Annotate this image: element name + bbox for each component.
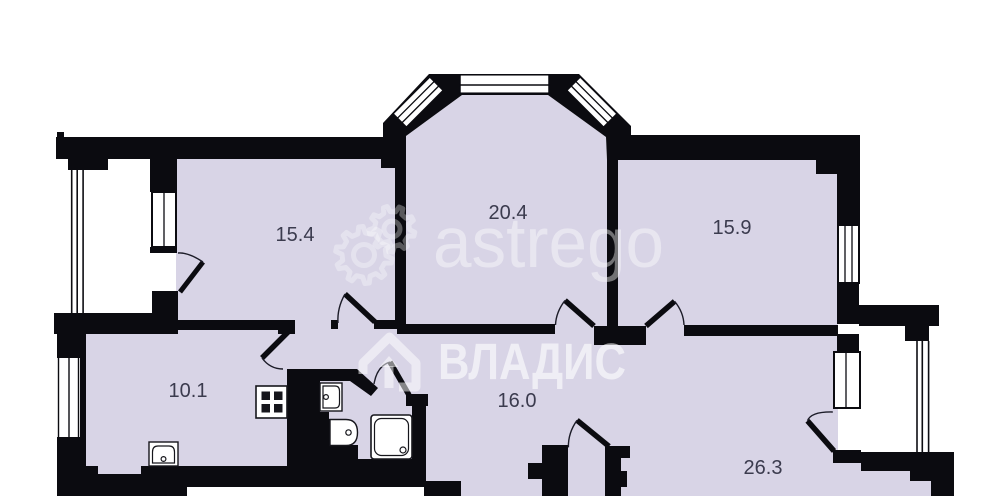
svg-text:15.4: 15.4 (276, 224, 315, 246)
svg-text:16.0: 16.0 (498, 390, 537, 412)
svg-text:20.4: 20.4 (489, 202, 528, 224)
svg-text:astrego: astrego (433, 204, 664, 283)
svg-text:10.1: 10.1 (169, 380, 208, 402)
svg-text:15.9: 15.9 (713, 217, 752, 239)
svg-text:26.3: 26.3 (744, 457, 783, 479)
svg-text:ВЛАДИС: ВЛАДИС (438, 333, 626, 390)
